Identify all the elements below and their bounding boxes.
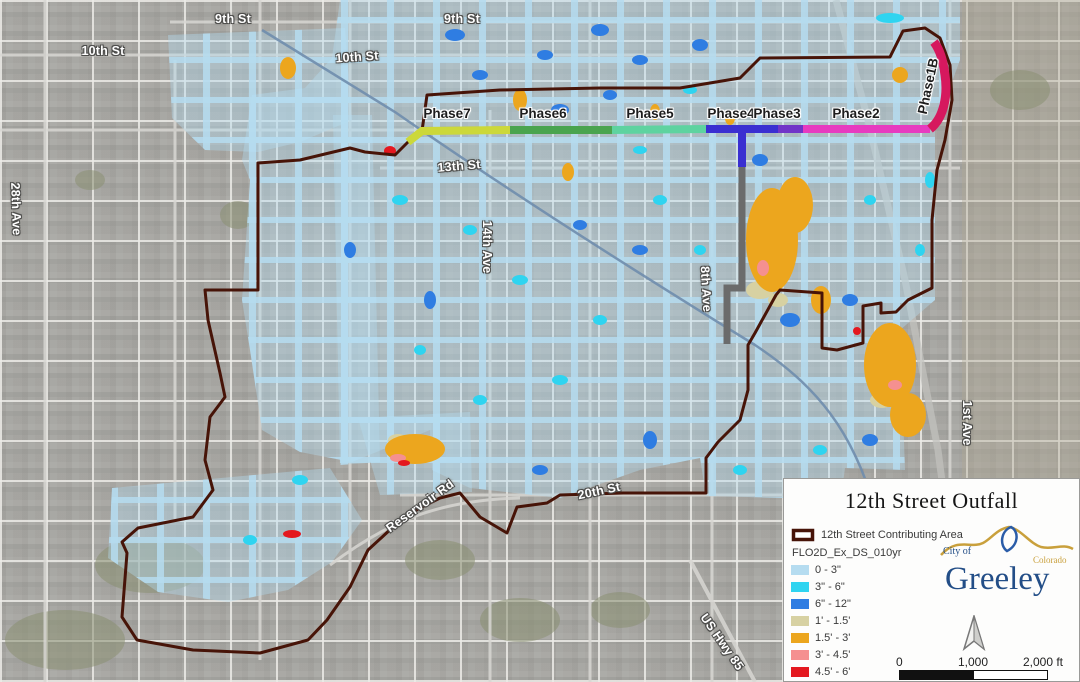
phase-segments bbox=[408, 42, 946, 167]
map-canvas: 9th St 9th St 10th St 10th St 13th St 14… bbox=[0, 0, 1080, 682]
scale-bar: 0 1,000 2,000 ft bbox=[899, 655, 1049, 680]
scale-end: 2,000 ft bbox=[1023, 655, 1063, 669]
logo-quill bbox=[1002, 527, 1017, 551]
north-arrow bbox=[962, 615, 986, 651]
logo-greeley-text: Greeley bbox=[945, 561, 1050, 597]
swatch-3-4p5ft bbox=[791, 650, 809, 660]
phase7-segment bbox=[408, 130, 510, 142]
swatch-1-1p5ft bbox=[791, 616, 809, 626]
logo-city-of-text: City of bbox=[943, 546, 972, 557]
swatch-0-3in bbox=[791, 565, 809, 575]
city-of-greeley-logo: City of Colorado Greeley bbox=[937, 521, 1077, 601]
swatch-6-12in bbox=[791, 599, 809, 609]
legend-panel: 12th Street Outfall 12th Street Contribu… bbox=[783, 478, 1080, 682]
legend-title: 12th Street Outfall bbox=[784, 488, 1079, 514]
swatch-4p5-6ft bbox=[791, 667, 809, 677]
scale-bar-graphic bbox=[899, 670, 1048, 680]
phase5-segment bbox=[612, 129, 706, 130]
existing-pipe bbox=[727, 166, 742, 344]
contributing-area-swatch bbox=[791, 528, 815, 542]
scale-mid: 1,000 bbox=[958, 655, 988, 669]
legend-item-1-1p5ft: 1' - 1.5' bbox=[791, 613, 963, 629]
legend-item-1p5-3ft: 1.5' - 3' bbox=[791, 630, 963, 646]
phase1b-segment bbox=[930, 42, 946, 129]
scale-zero: 0 bbox=[896, 655, 903, 669]
swatch-3-6in bbox=[791, 582, 809, 592]
swatch-1p5-3ft bbox=[791, 633, 809, 643]
